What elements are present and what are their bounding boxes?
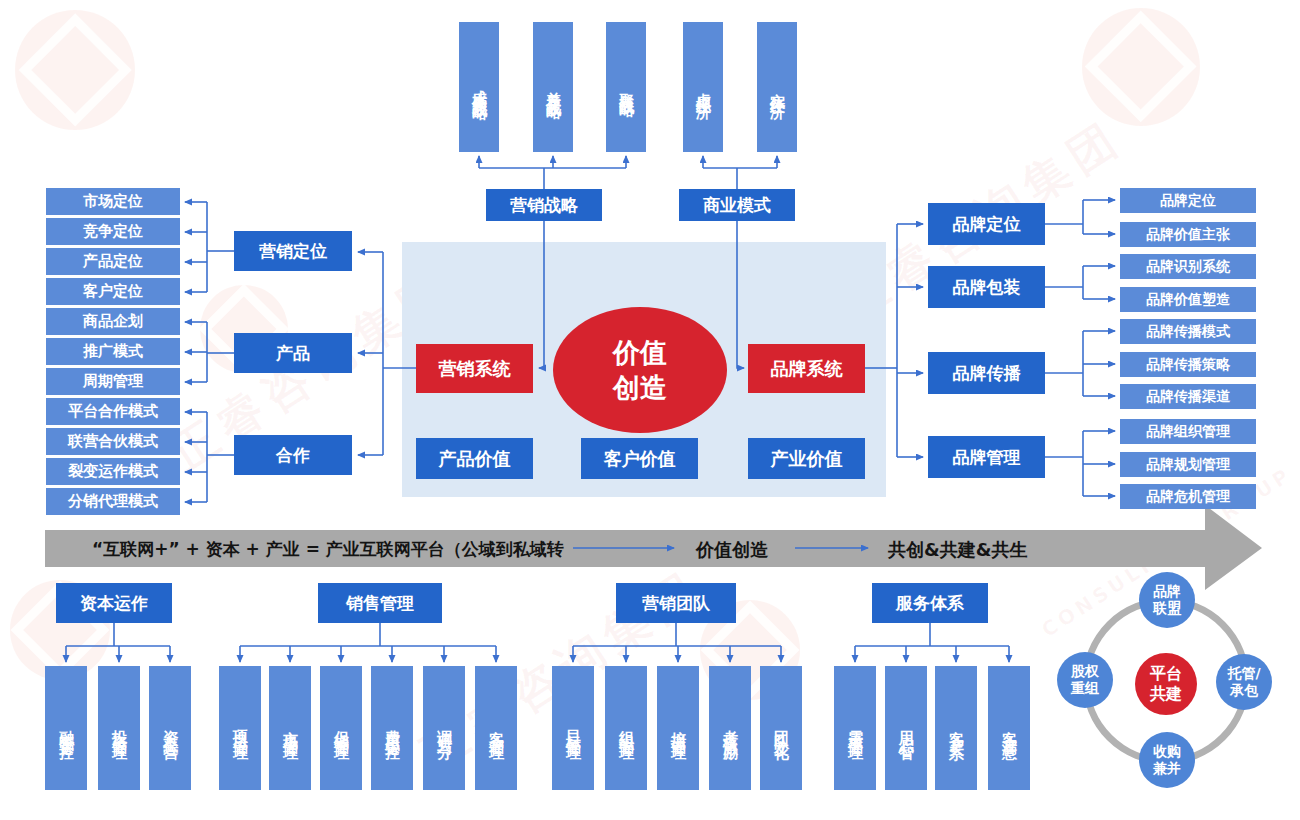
marketing-team-header: 营销团队 bbox=[616, 583, 736, 623]
customer-value-box: 客户价值 bbox=[581, 438, 698, 479]
cooperation-box: 合作 bbox=[234, 435, 352, 475]
brand-alliance-circle: 品牌 联盟 bbox=[1139, 572, 1195, 628]
marketing-strategy-box: 营销战略 bbox=[486, 189, 602, 221]
joint-partnership-item: 联营合伙模式 bbox=[46, 428, 180, 455]
marketing-positioning-box: 营销定位 bbox=[234, 231, 352, 271]
brand-crisis-management-item: 品牌危机管理 bbox=[1120, 484, 1256, 509]
value-creation-ellipse: 价值 创造 bbox=[553, 307, 727, 433]
demand-management-bar: 需求管理 bbox=[834, 666, 876, 790]
trusteeship-contract-circle: 托管/ 承包 bbox=[1216, 654, 1272, 710]
platform-cobuild-circle: 平台 共建 bbox=[1135, 653, 1197, 715]
market-positioning-item: 市场定位 bbox=[46, 188, 180, 215]
promotion-management-bar: 促销管理 bbox=[320, 666, 362, 790]
brand-system-box: 品牌系统 bbox=[748, 344, 865, 393]
brand-organization-management-item: 品牌组织管理 bbox=[1120, 419, 1256, 444]
differentiation-strategy-bar: 差异化战略 bbox=[533, 22, 573, 152]
expense-control-bar: 费用管控 bbox=[371, 666, 413, 790]
equity-restructuring-circle: 股权 重组 bbox=[1057, 652, 1113, 708]
competition-positioning-item: 竞争定位 bbox=[46, 218, 180, 245]
band-value-creation-text: 价值创造 bbox=[696, 538, 768, 562]
training-management-bar: 培训管理 bbox=[657, 666, 699, 790]
customer-positioning-item: 客户定位 bbox=[46, 278, 180, 305]
brand-positioning-item: 品牌定位 bbox=[1120, 188, 1256, 213]
merchandise-planning-item: 商品企划 bbox=[46, 308, 180, 335]
user-mindshare-bar: 用户心智 bbox=[885, 666, 927, 790]
investment-management-bar: 投资管理 bbox=[98, 666, 140, 790]
organization-management-bar: 组织管理 bbox=[605, 666, 647, 790]
platform-cooperation-item: 平台合作模式 bbox=[46, 398, 180, 425]
product-value-box: 产品价值 bbox=[416, 438, 533, 479]
brand-communication-channel-item: 品牌传播渠道 bbox=[1120, 384, 1256, 409]
brand-value-shaping-item: 品牌价值塑造 bbox=[1120, 287, 1256, 312]
assessment-incentive-bar: 考核激励 bbox=[709, 666, 751, 790]
customer-satisfaction-bar: 客户满意 bbox=[988, 666, 1030, 790]
capital-operation-header: 资本运作 bbox=[56, 583, 172, 623]
brand-communication-strategy-item: 品牌传播策略 bbox=[1120, 352, 1256, 377]
project-management-bar: 项目管理 bbox=[219, 666, 261, 790]
merger-acquisition-circle: 收购 兼并 bbox=[1139, 732, 1195, 788]
distribution-agency-item: 分销代理模式 bbox=[46, 488, 180, 515]
promotion-model-item: 推广模式 bbox=[46, 338, 180, 365]
market-management-bar: 市场管理 bbox=[269, 666, 311, 790]
customer-management-bar: 客户管理 bbox=[475, 666, 517, 790]
fission-operation-item: 裂变运作模式 bbox=[46, 458, 180, 485]
band-cocreation-text: 共创&共建&共生 bbox=[888, 538, 1027, 562]
research-analysis-bar: 调研与分 bbox=[423, 666, 465, 790]
brand-communication-box: 品牌传播 bbox=[928, 352, 1045, 394]
capital-operation-bar: 资本运营 bbox=[149, 666, 191, 790]
brand-value-proposition-item: 品牌价值主张 bbox=[1120, 222, 1256, 247]
brand-communication-model-item: 品牌传播模式 bbox=[1120, 319, 1256, 344]
sales-management-header: 销售管理 bbox=[318, 583, 442, 623]
focus-strategy-bar: 聚焦战略 bbox=[606, 22, 646, 152]
product-positioning-item: 产品定位 bbox=[46, 248, 180, 275]
service-system-header: 服务体系 bbox=[872, 583, 988, 623]
goal-management-bar: 目标管理 bbox=[552, 666, 594, 790]
industry-value-box: 产业价值 bbox=[748, 438, 865, 479]
brand-positioning-box: 品牌定位 bbox=[928, 203, 1045, 245]
value-creation-diagram: 正睿咨询集团 正睿咨询集团 正睿咨询集团 CONSULTING GROUP bbox=[0, 0, 1300, 820]
team-culture-bar: 团队文化 bbox=[760, 666, 802, 790]
marketing-system-box: 营销系统 bbox=[416, 344, 533, 393]
brand-management-box: 品牌管理 bbox=[928, 436, 1045, 478]
brand-packaging-box: 品牌包装 bbox=[928, 266, 1045, 308]
virtual-economy-bar: 虚拟经济 bbox=[683, 22, 723, 152]
business-model-box: 商业模式 bbox=[679, 189, 795, 221]
product-box: 产品 bbox=[234, 333, 352, 373]
brand-planning-management-item: 品牌规划管理 bbox=[1120, 452, 1256, 477]
real-economy-bar: 实体经济 bbox=[757, 22, 797, 152]
customer-relations-bar: 客户关系 bbox=[935, 666, 977, 790]
financing-control-bar: 融资管控 bbox=[45, 666, 87, 790]
brand-identity-system-item: 品牌识别系统 bbox=[1120, 254, 1256, 279]
band-formula-text: “互联网+” + 资本 + 产业 = 产业互联网平台（公域到私域转 bbox=[92, 538, 564, 561]
cost-leadership-strategy-bar: 成本领先战略 bbox=[459, 22, 499, 152]
lifecycle-management-item: 周期管理 bbox=[46, 368, 180, 395]
